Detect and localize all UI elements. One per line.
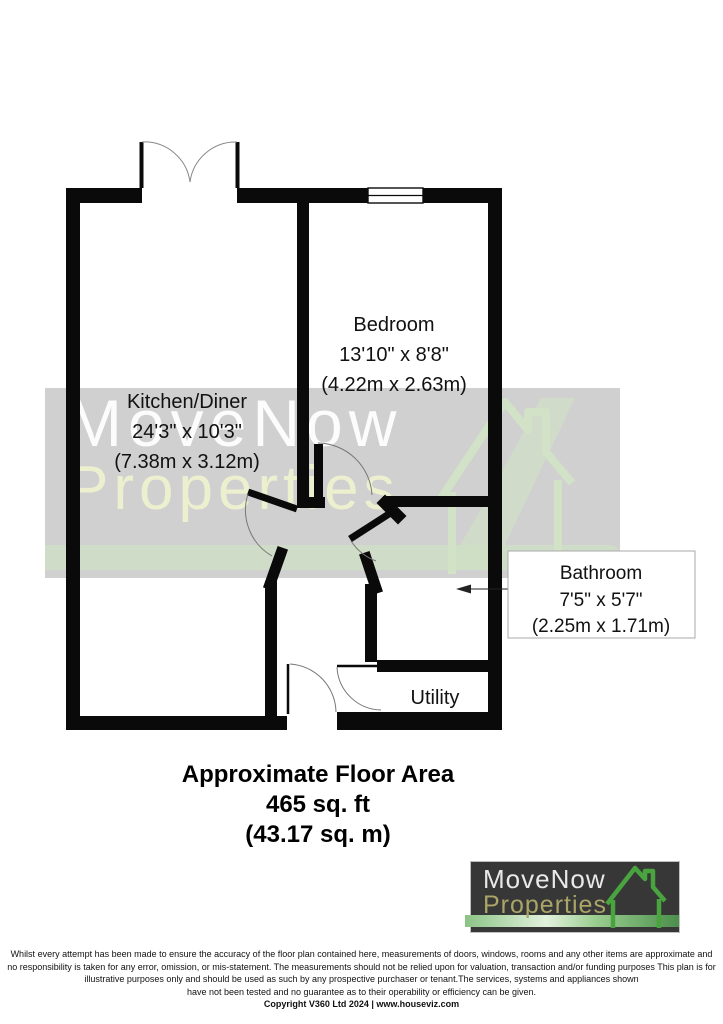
disclaimer-line-1: Whilst every attempt has been made to en…: [0, 948, 723, 961]
entrance-door: [288, 664, 336, 714]
floor-area-sqft: 465 sq. ft: [0, 790, 636, 820]
utility-name: Utility: [411, 687, 460, 709]
bedroom-door: [318, 443, 372, 495]
bathroom-name: Bathroom: [560, 563, 642, 584]
bathroom-dims-imperial: 7'5" x 5'7": [559, 590, 642, 611]
floor-area-summary: Approximate Floor Area 465 sq. ft (43.17…: [0, 760, 636, 850]
logo-house-icon: [603, 864, 677, 930]
disclaimer-text: Whilst every attempt has been made to en…: [0, 948, 723, 1011]
kitchen-dims-imperial: 24'3" x 10'3": [132, 421, 242, 443]
kitchen-name: Kitchen/Diner: [127, 391, 247, 413]
logo-text-properties: Properties: [483, 893, 607, 918]
interior-wall-jogs: [270, 503, 398, 588]
floor-area-sqm: (43.17 sq. m): [0, 820, 636, 850]
bathroom-dims-metric: (2.25m x 1.71m): [532, 616, 670, 637]
disclaimer-line-4: have not been tested and no guarantee as…: [0, 986, 723, 999]
bedroom-dims-imperial: 13'10" x 8'8": [339, 344, 449, 366]
logo-text-movenow: MoveNow: [483, 866, 606, 892]
agency-logo: MoveNow Properties: [470, 861, 680, 933]
disclaimer-line-2: no responsibility is taken for any error…: [0, 961, 723, 974]
bedroom-label-group: Bedroom 13'10" x 8'8" (4.22m x 2.63m): [321, 314, 467, 396]
bedroom-window: [368, 188, 423, 203]
floor-area-title: Approximate Floor Area: [0, 760, 636, 790]
utility-door: [337, 666, 381, 710]
interior-walls: [265, 203, 502, 716]
bathroom-door: [350, 512, 392, 561]
kitchen-dims-metric: (7.38m x 3.12m): [114, 451, 260, 473]
disclaimer-line-3: illustrative purposes only and should be…: [0, 973, 723, 986]
bedroom-dims-metric: (4.22m x 2.63m): [321, 374, 467, 396]
kitchen-label-group: Kitchen/Diner 24'3" x 10'3" (7.38m x 3.1…: [114, 391, 260, 473]
kitchen-door: [245, 492, 297, 556]
french-doors: [140, 142, 240, 188]
floorplan-page: MoveNow Properties: [0, 0, 723, 1024]
copyright-line: Copyright V360 Ltd 2024 | www.houseviz.c…: [0, 998, 723, 1011]
bathroom-arrow-head: [456, 585, 471, 594]
bedroom-name: Bedroom: [353, 314, 434, 336]
